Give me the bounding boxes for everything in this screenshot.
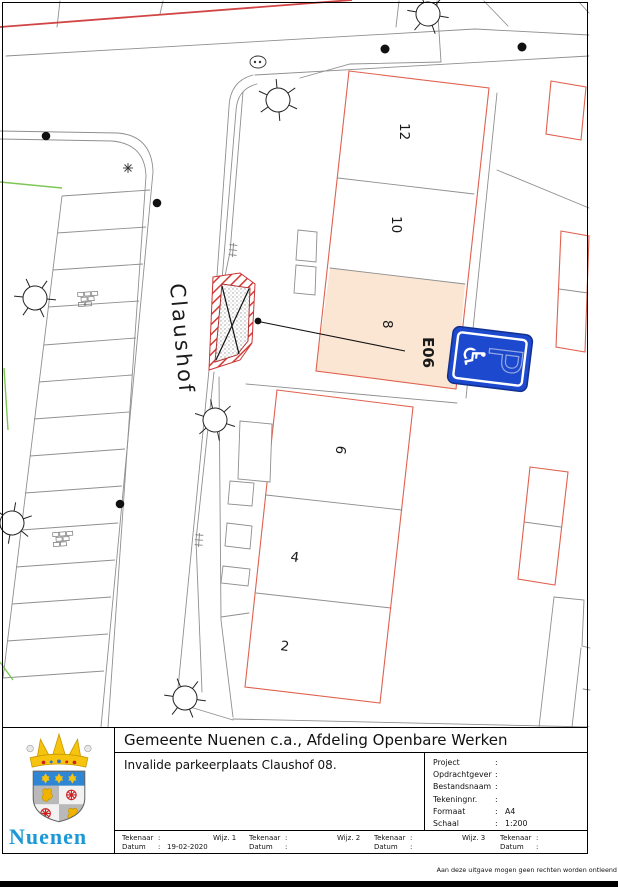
drawing-subtitle: Invalide parkeerplaats Claushof 08. <box>124 758 337 772</box>
nuenen-wordmark: Nuenen <box>9 824 87 850</box>
field-schaal: Schaal:1:200 <box>433 818 587 830</box>
datum-label: Datum <box>500 843 524 851</box>
field-formaat: Formaat:A4 <box>433 806 587 818</box>
field-bestandsnaam: Bestandsnaam: <box>433 781 587 793</box>
field-project: Project: <box>433 757 587 769</box>
wijz-3-label: Wijz. 3 <box>462 834 485 842</box>
field-opdrachtgever: Opdrachtgever: <box>433 769 587 781</box>
drawing-info-fields: Project: Opdrachtgever: Bestandsnaam: Te… <box>424 753 587 830</box>
revision-strip: Tekenaar : Wijz. 1 Datum : 19-02-2020 Te… <box>115 831 587 853</box>
drawing-title: Gemeente Nuenen c.a., Afdeling Openbare … <box>115 728 587 753</box>
tekenaar-label: Tekenaar <box>374 834 405 842</box>
wijz-1-label: Wijz. 1 <box>213 834 236 842</box>
datum-label: Datum <box>122 843 146 851</box>
datum-label: Datum <box>249 843 273 851</box>
wijz-2-label: Wijz. 2 <box>337 834 360 842</box>
tekenaar-label: Tekenaar <box>122 834 153 842</box>
bottom-border-bar <box>0 881 618 887</box>
crown-icon <box>27 734 91 767</box>
drawing-page: { "map": { "street_label": "Claushof", "… <box>0 0 618 889</box>
field-tekeningnr: Tekeningnr.: <box>433 794 587 806</box>
datum-value: 19-02-2020 <box>167 843 208 851</box>
nuenen-coat-of-arms <box>11 732 107 830</box>
tekenaar-label: Tekenaar <box>500 834 531 842</box>
title-block-middle: Invalide parkeerplaats Claushof 08. Proj… <box>115 753 587 831</box>
tekenaar-label: Tekenaar <box>249 834 280 842</box>
title-block: Nuenen Gemeente Nuenen c.a., Afdeling Op… <box>2 727 588 854</box>
datum-label: Datum <box>374 843 398 851</box>
logo-cell: Nuenen <box>3 728 115 853</box>
disclaimer-text: Aan deze uitgave mogen geen rechten word… <box>437 866 617 874</box>
